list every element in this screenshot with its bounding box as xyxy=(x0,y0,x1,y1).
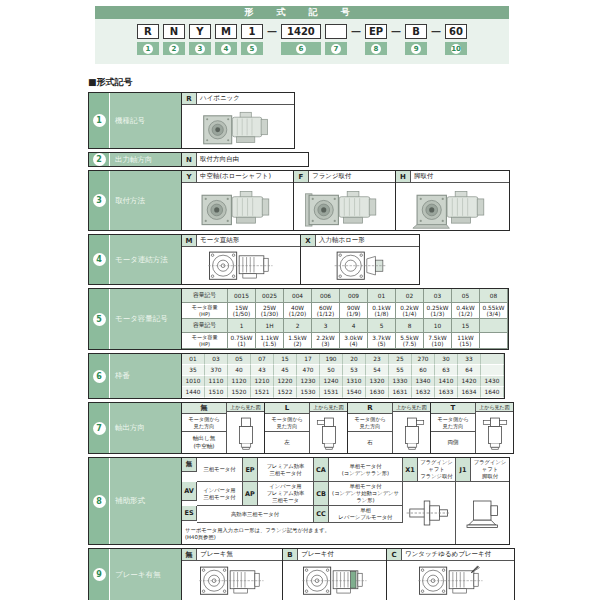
plug-in-shaft-foot-drawing xyxy=(456,482,509,544)
table-cell: 1522 xyxy=(274,387,297,398)
row4-number: 4 xyxy=(89,235,110,284)
table-cell: 1240 xyxy=(320,376,343,387)
badge-9: 9 xyxy=(405,42,427,55)
badge-6: 6 xyxy=(281,42,321,55)
table-cell: 1520 xyxy=(228,387,251,398)
badge-5: 5 xyxy=(241,42,263,55)
code-M: M xyxy=(182,235,197,246)
motor-direct-drawing xyxy=(182,247,300,284)
code-box-3: Y xyxy=(189,24,211,39)
table-cell: 1110 xyxy=(205,376,228,387)
table-cell: 470 xyxy=(297,365,320,376)
desc-hyponic: ハイポニック xyxy=(197,93,294,104)
capacity-row-header: モータ容量 (HP) xyxy=(182,333,228,349)
table-cell: 190 xyxy=(320,354,343,365)
frame-row-4: 1440151015201521152215301531154016301631… xyxy=(182,387,504,398)
code-CB: CB xyxy=(314,482,329,506)
row8-label: 補助形式 xyxy=(110,458,182,544)
row-auxiliary-type: 8 補助形式 無 三相モータ付 EP プレミアム効率 三相モータ付 CA 単相モ… xyxy=(88,457,510,545)
row7-number: 7 xyxy=(89,403,110,453)
table-cell: 2 xyxy=(284,319,312,333)
table-cell: 1410 xyxy=(435,376,458,387)
dash-segment: — xyxy=(351,24,361,55)
code-segment: Y 3 xyxy=(189,24,211,55)
table-cell: 1632 xyxy=(412,387,435,398)
table-cell: 1640 xyxy=(481,387,504,398)
table-cell: 1210 xyxy=(251,376,274,387)
table-cell: 0.1kW (1/8) xyxy=(368,303,396,319)
table-cell: 0.2kW (1/4) xyxy=(396,303,424,319)
desc-high-efficiency: 高効率三相モータ付 xyxy=(197,506,314,523)
code-N: N xyxy=(182,153,197,166)
code-segment: B 9 xyxy=(405,24,427,55)
table-cell: 1420 xyxy=(458,376,481,387)
code-segment: 7 xyxy=(325,24,347,55)
table-cell: 17 xyxy=(297,354,320,365)
table-cell: 1120 xyxy=(228,376,251,387)
table-cell: 01 xyxy=(182,354,205,365)
row5-number: 5 xyxy=(89,289,110,349)
table-cell: 20 xyxy=(343,354,366,365)
table-cell xyxy=(480,319,508,333)
hyponic-gearmotor-photo xyxy=(182,105,294,148)
code-AP: AP xyxy=(243,482,258,506)
auxiliary-grid: 無 三相モータ付 EP プレミアム効率 三相モータ付 CA 単相モータ付 (コン… xyxy=(182,458,509,544)
table-cell: 370 xyxy=(205,365,228,376)
table-cell: 5 xyxy=(368,319,396,333)
dash-segment: — xyxy=(431,24,441,55)
table-cell: 1230 xyxy=(297,376,320,387)
table-cell: 40 xyxy=(228,365,251,376)
section-title: ■形式記号 xyxy=(88,76,133,89)
desc-inverter-premium: インバータ用 プレミアム効率 三相モータ xyxy=(258,482,314,506)
desc-no-brake: ブレーキ無 xyxy=(197,549,282,560)
code-box-9: B xyxy=(405,24,427,39)
row5-label: モータ容量記号 xyxy=(110,289,182,349)
code-box-4: M xyxy=(215,24,237,39)
table-cell: 1.1kW (1.5) xyxy=(256,333,284,349)
table-cell: 1510 xyxy=(205,387,228,398)
table-cell: 10 xyxy=(424,319,452,333)
table-cell: 0015 xyxy=(228,289,256,303)
table-cell: 2.2kW (3) xyxy=(312,333,340,349)
desc-motor-direct: モータ直結形 xyxy=(197,235,300,246)
desc-hollow-shaft: 中空軸(ホローシャフト) xyxy=(197,171,293,182)
desc-single-phase-capacitor-run: 単相モータ付 (コンデンサラン形) xyxy=(329,458,403,482)
table-cell: 45 xyxy=(274,365,297,376)
table-cell: 5.5kW (7.5) xyxy=(396,333,424,349)
top-view-no-shaft: 上から見た図 xyxy=(227,403,265,453)
table-cell: 43 xyxy=(251,365,274,376)
table-cell: 54 xyxy=(366,365,389,376)
table-cell: 1010 xyxy=(182,376,205,387)
row9-number: 9 xyxy=(89,549,110,600)
table-cell: 07 xyxy=(251,354,274,365)
desc-one-touch-release-brake: ワンタッチゆるめブレーキ付 xyxy=(402,549,514,560)
table-cell: 1320 xyxy=(366,376,389,387)
row8-number: 8 xyxy=(89,458,110,544)
row-model-type: 1 機種記号 R ハイポニック xyxy=(88,92,295,149)
code-ES: ES xyxy=(182,506,197,521)
table-cell xyxy=(480,333,508,349)
table-cell: 006 xyxy=(312,289,340,303)
code-F: F xyxy=(294,171,309,182)
code-Y: Y xyxy=(182,171,197,182)
panel-title: 形 式 記 号 xyxy=(95,6,509,19)
top-view-both-shafts: 上から見た図 xyxy=(476,403,513,453)
code-CC: CC xyxy=(314,506,329,523)
table-cell: 0.25kW (1/3) xyxy=(424,303,452,319)
table-cell: 15 xyxy=(452,319,480,333)
code-C: C xyxy=(387,549,402,560)
table-cell: 1530 xyxy=(297,387,320,398)
table-cell: 64 xyxy=(458,365,481,376)
row3-label: 取付方法 xyxy=(110,171,182,230)
row7-label: 軸出方向 xyxy=(110,403,182,453)
desc-brake: ブレーキ付 xyxy=(298,549,386,560)
capacity-row-header: 容量記号 xyxy=(182,289,228,303)
table-cell: 33 xyxy=(458,354,481,365)
table-cell: 60W (1/12) xyxy=(312,303,340,319)
table-cell: 7.5kW (10) xyxy=(424,333,452,349)
table-cell: 40W (1/20) xyxy=(284,303,312,319)
capacity-table-caps2: モータ容量 (HP) 0.75kW (1)1.1kW (1.5)1.5kW (2… xyxy=(182,333,508,349)
table-cell: 05 xyxy=(228,354,251,365)
table-cell: 50 xyxy=(320,365,343,376)
desc-three-phase: 三相モータ付 xyxy=(197,458,243,482)
table-cell: 004 xyxy=(284,289,312,303)
desc-flange-mount: フランジ取付 xyxy=(309,171,395,182)
table-cell xyxy=(481,354,504,365)
badge-8: 8 xyxy=(365,42,387,55)
badge-1: 1 xyxy=(137,42,159,55)
desc-premium-efficiency: プレミアム効率 三相モータ付 xyxy=(258,458,314,482)
table-cell: 8 xyxy=(396,319,424,333)
table-cell: 1340 xyxy=(412,376,435,387)
capacity-table: 容量記号 001500250040060090102030508 xyxy=(182,289,508,303)
row2-label: 出力軸方向 xyxy=(110,153,182,166)
desc-input-hollow: 入力軸ホロー形 xyxy=(316,235,419,246)
code-segment: EP 8 xyxy=(365,24,387,55)
code-none: 無 xyxy=(182,458,197,472)
row4-label: モータ連結方法 xyxy=(110,235,182,284)
code-segment: 60 10 xyxy=(445,24,467,55)
desc-free-mounting: 取付方向自由 xyxy=(197,153,308,166)
table-cell: 1440 xyxy=(182,387,205,398)
code-segment: N 2 xyxy=(163,24,185,55)
model-code-row: R 1 N 2 Y 3 M 4 1 5 — 1420 6 7 — EP xyxy=(95,24,509,55)
table-cell: 1220 xyxy=(274,376,297,387)
table-cell: 4 xyxy=(340,319,368,333)
foot-mount-photo xyxy=(396,183,509,230)
table-cell: 1330 xyxy=(389,376,412,387)
code-box-2: N xyxy=(163,24,185,39)
dash-segment: — xyxy=(391,24,401,55)
shaft-option-right: R モータ側から 見た方向 右 xyxy=(348,403,393,453)
row-motor-coupling: 4 モータ連結方法 M モータ直結形 X 入力軸ホロー形 xyxy=(88,234,420,285)
table-cell: 1310 xyxy=(343,376,366,387)
code-segment: R 1 xyxy=(137,24,159,55)
badge-10: 10 xyxy=(445,42,467,55)
badge-4: 4 xyxy=(215,42,237,55)
table-cell: 3 xyxy=(312,319,340,333)
table-cell: 01 xyxy=(368,289,396,303)
table-cell: 1 xyxy=(228,319,256,333)
table-cell: 03 xyxy=(424,289,452,303)
table-cell: 15W (1/50) xyxy=(228,303,256,319)
shaft-option-left: L モータ側から 見た方向 左 xyxy=(265,403,310,453)
code-J1: J1 xyxy=(456,458,471,482)
row-mounting-method: 3 取付方法 Y 中空軸(ホローシャフト) F フランジ取付 xyxy=(88,170,510,231)
row1-number: 1 xyxy=(89,93,110,148)
table-cell: 1.5kW (2) xyxy=(284,333,312,349)
code-AV: AV xyxy=(182,482,197,501)
plug-in-shaft-flange-drawing xyxy=(403,482,456,544)
row-motor-capacity-code: 5 モータ容量記号 容量記号 0015002500400600901020305… xyxy=(88,288,509,350)
row1-label: 機種記号 xyxy=(110,93,182,148)
code-box-10: 60 xyxy=(445,24,467,39)
row6-label: 枠番 xyxy=(110,354,182,398)
spec-table: 1 機種記号 R ハイポニック 2 出力軸方向 N 取付方向自由 3 取付方法 xyxy=(88,92,515,600)
table-cell: 35 xyxy=(182,365,205,376)
capacity-table-codes2: 容量記号 11H234581015 xyxy=(182,319,508,333)
code-segment: 1 5 xyxy=(241,24,263,55)
row-brake: 9 ブレーキ有無 無 ブレーキ無 B ブレーキ付 xyxy=(88,548,515,600)
row-frame-number: 6 枠番 0103050715171902023252703033 353704… xyxy=(88,353,505,399)
table-cell: 1633 xyxy=(435,387,458,398)
code-segment: M 4 xyxy=(215,24,237,55)
badge-3: 3 xyxy=(189,42,211,55)
table-cell: 3.0kW (4) xyxy=(340,333,368,349)
table-cell: 11kW (15) xyxy=(452,333,480,349)
row2-number: 2 xyxy=(89,153,110,166)
frame-row-2: 3537040434547050535455606364 xyxy=(182,365,504,376)
table-cell: 1631 xyxy=(389,387,412,398)
table-cell: 23 xyxy=(366,354,389,365)
table-cell: 0025 xyxy=(256,289,284,303)
row-shaft-output-direction: 7 軸出方向 無 モータ側から 見た方向 軸出し無 (中空軸) 上から見た図 L… xyxy=(88,402,514,454)
table-cell: 1430 xyxy=(481,376,504,387)
table-cell: 0.55kW (3/4) xyxy=(480,303,508,319)
code-box-5: 1 xyxy=(241,24,263,39)
desc-plugin-shaft-flange: プラグインシャフト フランジ取付 xyxy=(418,458,456,482)
shaft-option-none: 無 モータ側から 見た方向 軸出し無 (中空軸) xyxy=(182,403,227,453)
code-R: R xyxy=(182,93,197,104)
capacity-row-header: モータ容量 (HP) xyxy=(182,303,228,319)
table-cell: 53 xyxy=(343,365,366,376)
table-cell: 3.7kW (5) xyxy=(368,333,396,349)
code-B: B xyxy=(283,549,298,560)
desc-single-phase-cap-start-run: 単相モータ付 (コンデンサ始動コンデンサラン形) xyxy=(329,482,403,506)
code-box-7 xyxy=(325,24,347,39)
table-cell: 25W (1/30) xyxy=(256,303,284,319)
table-cell: 63 xyxy=(435,365,458,376)
desc-plugin-shaft-foot: プラグインシャフト 脚取付 xyxy=(471,458,509,482)
one-touch-release-brake-drawing xyxy=(387,561,514,600)
badge-2: 2 xyxy=(163,42,185,55)
table-cell: 1H xyxy=(256,319,284,333)
capacity-row-header: 容量記号 xyxy=(182,319,228,333)
table-cell: 1540 xyxy=(343,387,366,398)
code-box-1: R xyxy=(137,24,159,39)
table-cell: 03 xyxy=(205,354,228,365)
no-brake-drawing xyxy=(182,561,282,600)
input-hollow-drawing xyxy=(301,247,419,284)
table-cell xyxy=(481,365,504,376)
code-X1: X1 xyxy=(403,458,418,482)
table-cell: 90W (1/9) xyxy=(340,303,368,319)
shaft-option-both: T モータ側から 見た方向 両側 xyxy=(431,403,476,453)
frame-row-3: 1010111011201210122012301240131013201330… xyxy=(182,376,504,387)
code-box-8: EP xyxy=(365,24,387,39)
table-cell: 1521 xyxy=(251,387,274,398)
code-no-brake: 無 xyxy=(182,549,197,560)
brake-drawing xyxy=(283,561,386,600)
model-code-panel: 形 式 記 号 R 1 N 2 Y 3 M 4 1 5 — 1420 6 7 xyxy=(95,6,509,64)
code-CA: CA xyxy=(314,458,329,482)
row3-number: 3 xyxy=(89,171,110,230)
row-output-shaft-direction: 2 出力軸方向 N 取付方向自由 xyxy=(88,152,309,167)
code-EP: EP xyxy=(243,458,258,482)
code-H: H xyxy=(396,171,411,182)
capacity-table-caps1: モータ容量 (HP) 15W (1/50)25W (1/30)40W (1/20… xyxy=(182,303,508,319)
row6-number: 6 xyxy=(89,354,110,398)
table-cell: 1531 xyxy=(320,387,343,398)
code-box-6: 1420 xyxy=(281,24,321,39)
table-cell: 25 xyxy=(389,354,412,365)
flange-mount-photo xyxy=(294,183,395,230)
top-view-right-shaft: 上から見た図 xyxy=(393,403,431,453)
desc-inverter-three-phase: インバータ用 三相モータ付 xyxy=(197,482,243,506)
table-cell: 02 xyxy=(396,289,424,303)
table-cell: 08 xyxy=(480,289,508,303)
table-cell: 1634 xyxy=(458,387,481,398)
badge-7: 7 xyxy=(325,42,347,55)
top-view-left-shaft: 上から見た図 xyxy=(310,403,348,453)
code-X: X xyxy=(301,235,316,246)
table-cell: 1630 xyxy=(366,387,389,398)
table-cell: 270 xyxy=(412,354,435,365)
desc-single-phase-reversible: 単相 レバーシブルモータ付 xyxy=(329,506,403,523)
frame-row-1: 0103050715171902023252703033 xyxy=(182,354,504,365)
desc-foot-mount: 脚取付 xyxy=(411,171,509,182)
table-cell: 05 xyxy=(452,289,480,303)
hollow-shaft-photo xyxy=(182,183,293,230)
table-cell: 60 xyxy=(412,365,435,376)
table-cell: 30 xyxy=(435,354,458,365)
row9-label: ブレーキ有無 xyxy=(110,549,182,600)
table-cell: 009 xyxy=(340,289,368,303)
code-segment: 1420 6 xyxy=(281,24,321,55)
table-cell: 55 xyxy=(389,365,412,376)
table-cell: 0.75kW (1) xyxy=(228,333,256,349)
dash-segment: — xyxy=(267,24,277,55)
servo-note: サーボモータ用入力ホロー形は、フランジ記号が付きます。 (H40頁参照) xyxy=(182,523,403,544)
table-cell: 0.4kW (1/2) xyxy=(452,303,480,319)
table-cell: 15 xyxy=(274,354,297,365)
